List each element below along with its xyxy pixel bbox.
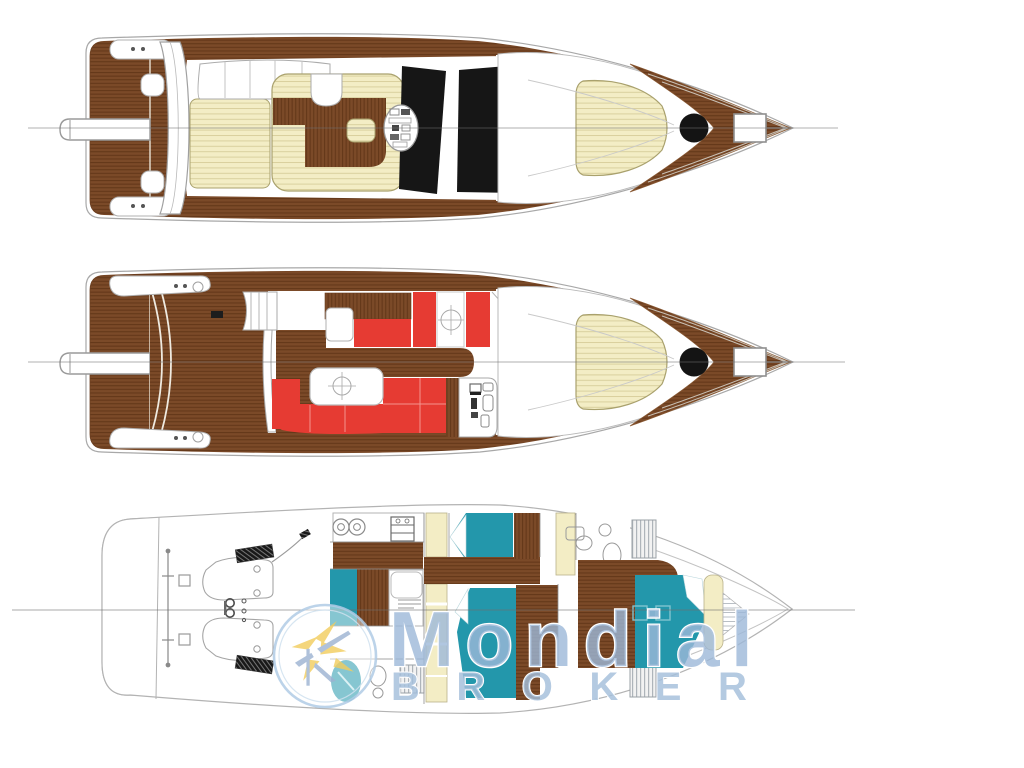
svg-text:BROKER: BROKER xyxy=(391,665,783,709)
